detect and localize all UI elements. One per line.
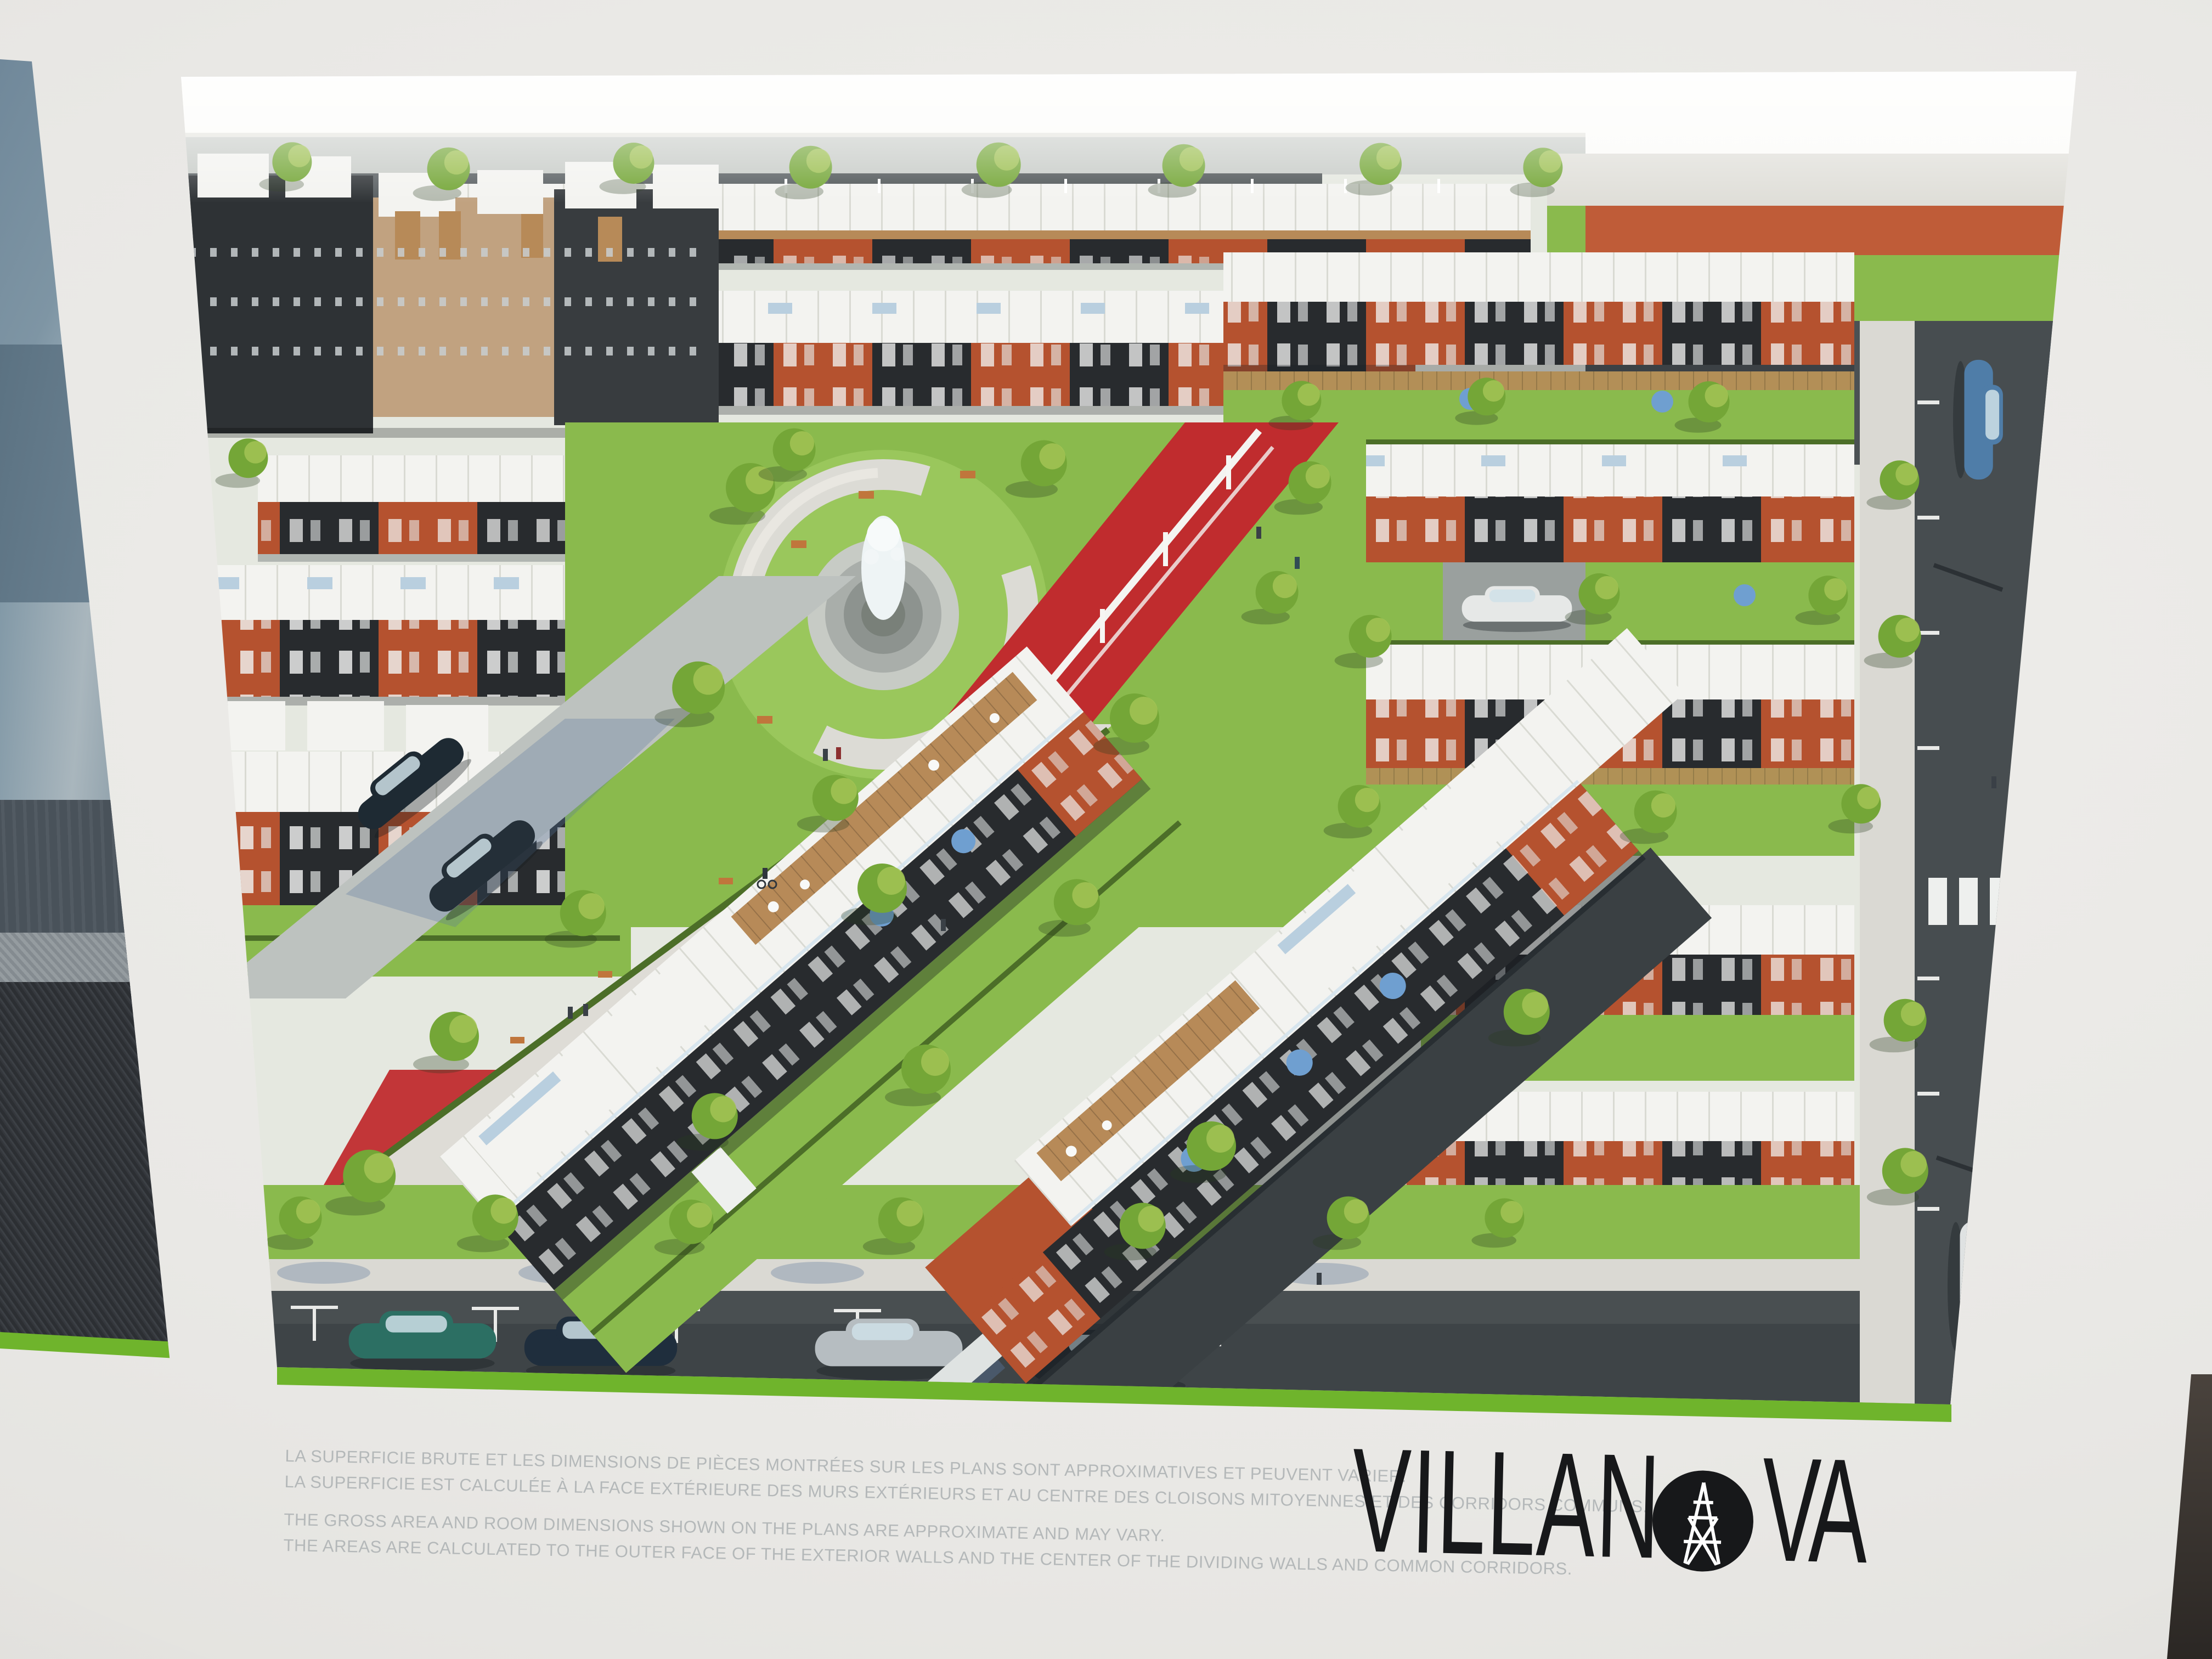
logo-text-va: VA — [1760, 1433, 1870, 1581]
brand-logo: VILLAN VA — [1351, 1433, 1987, 1581]
photo: LA SUPERFICIE BRUTE ET LES DIMENSIONS DE… — [0, 0, 2212, 1659]
truss-circle-icon — [1651, 1469, 1754, 1572]
aerial-scene — [181, 71, 2076, 1404]
poster-rendering — [181, 71, 2076, 1404]
brand-logo-svg: VILLAN VA — [1351, 1433, 1987, 1581]
logo-text-villan: VILLAN — [1351, 1433, 1663, 1581]
